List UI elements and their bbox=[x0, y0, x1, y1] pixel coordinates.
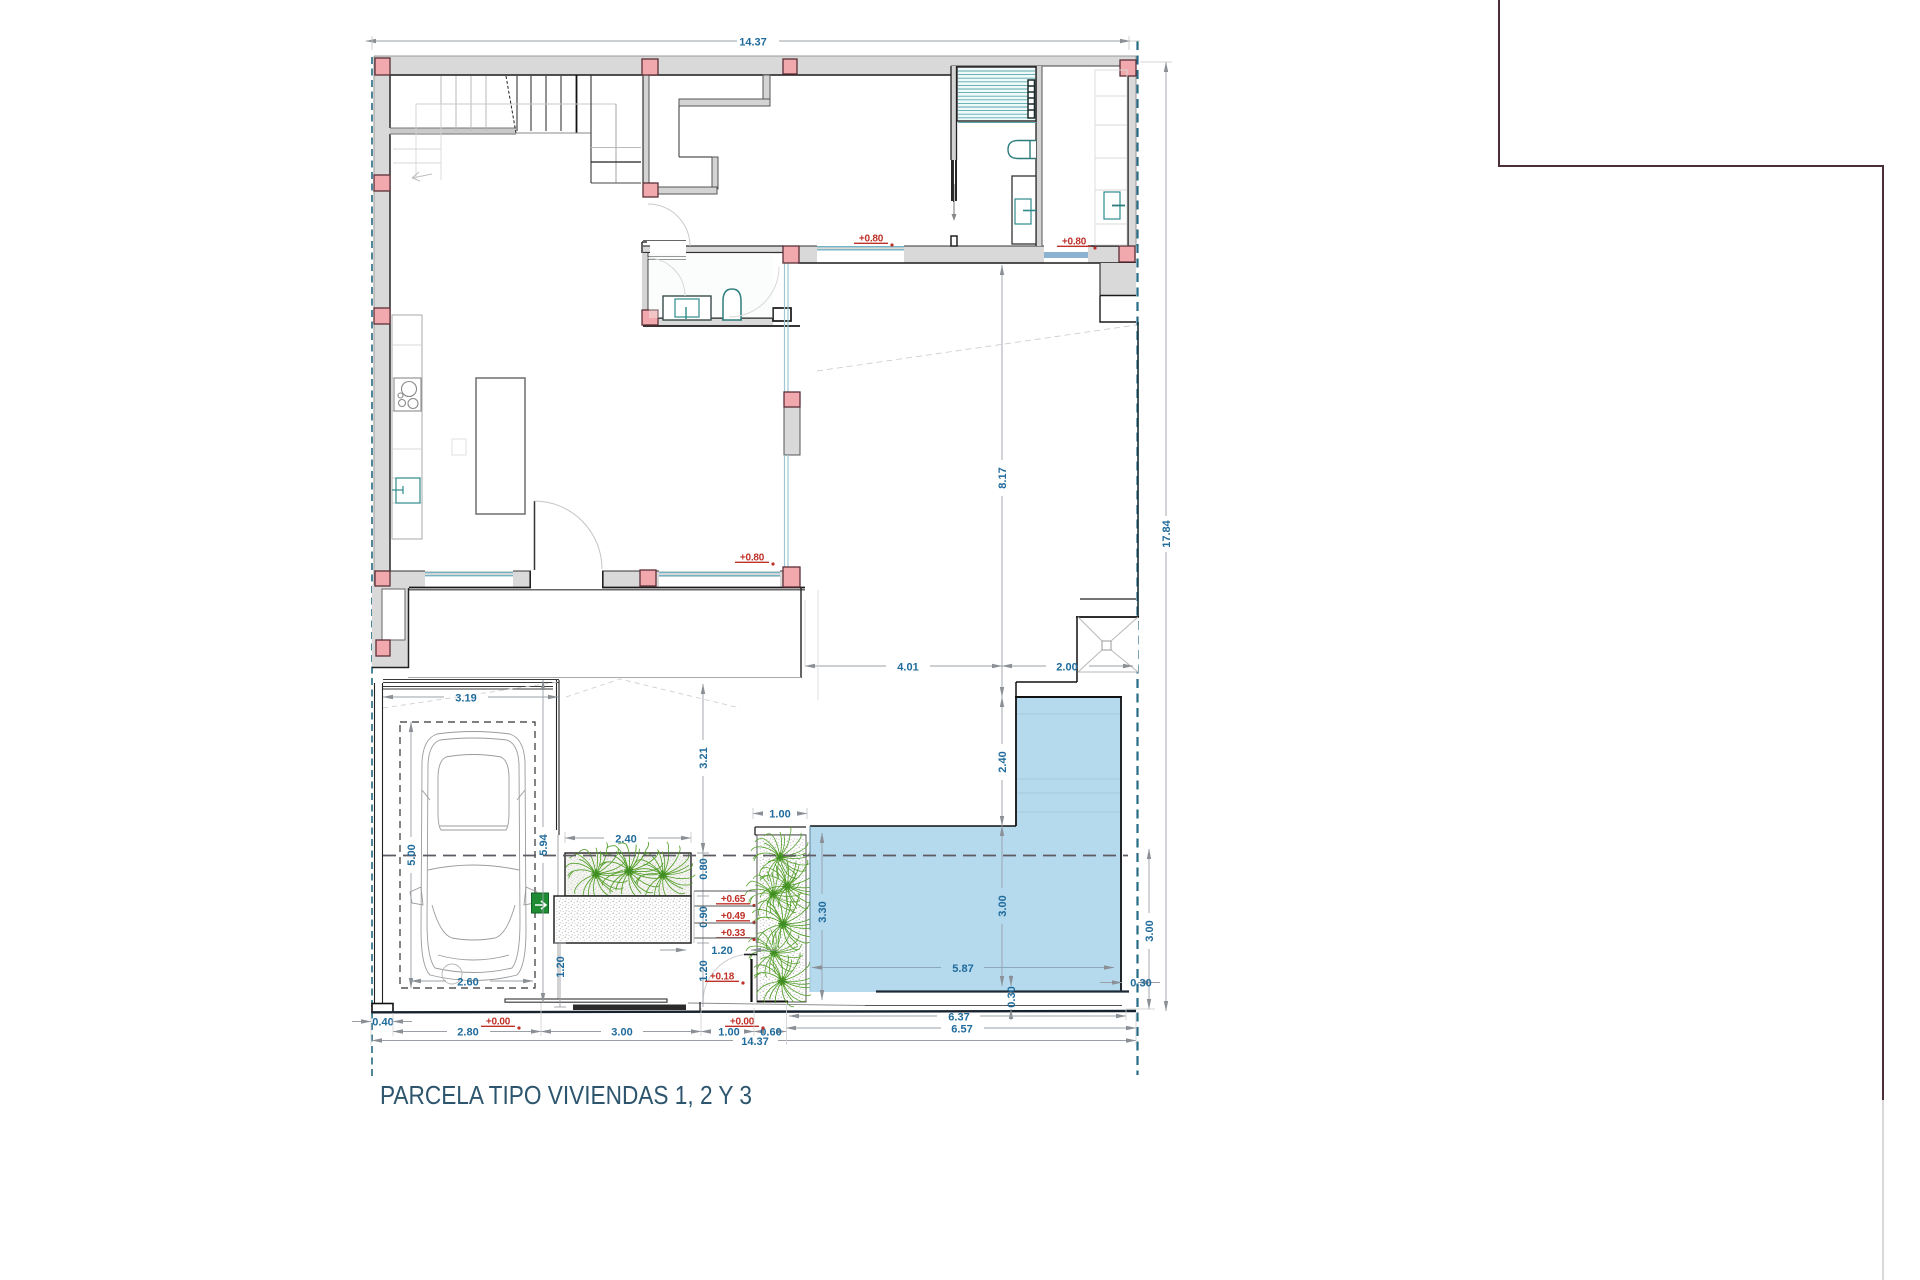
svg-text:8.17: 8.17 bbox=[997, 467, 1009, 488]
svg-text:3.00: 3.00 bbox=[997, 895, 1009, 916]
svg-text:14.37: 14.37 bbox=[739, 37, 767, 49]
svg-text:PARCELA TIPO VIVIENDAS 1, 2 Y: PARCELA TIPO VIVIENDAS 1, 2 Y 3 bbox=[380, 1082, 752, 1110]
svg-text:4.01: 4.01 bbox=[897, 662, 918, 674]
svg-text:5.94: 5.94 bbox=[538, 833, 550, 855]
svg-text:3.00: 3.00 bbox=[1144, 920, 1156, 941]
svg-text:3.21: 3.21 bbox=[698, 747, 710, 768]
svg-text:5.87: 5.87 bbox=[952, 963, 973, 975]
svg-text:0.40: 0.40 bbox=[372, 1017, 393, 1029]
svg-text:0.90: 0.90 bbox=[698, 906, 710, 927]
svg-text:17.84: 17.84 bbox=[1161, 519, 1173, 547]
svg-text:1.00: 1.00 bbox=[769, 809, 790, 821]
svg-text:1.20: 1.20 bbox=[698, 960, 710, 981]
svg-text:0.30: 0.30 bbox=[1130, 978, 1151, 990]
svg-text:2.00: 2.00 bbox=[1056, 662, 1077, 674]
svg-text:6.37: 6.37 bbox=[948, 1012, 969, 1024]
svg-text:1.20: 1.20 bbox=[555, 956, 567, 977]
svg-text:3.19: 3.19 bbox=[455, 693, 476, 705]
svg-text:2.40: 2.40 bbox=[615, 834, 636, 846]
svg-text:6.57: 6.57 bbox=[951, 1024, 972, 1036]
svg-text:2.40: 2.40 bbox=[997, 751, 1009, 772]
svg-text:1.00: 1.00 bbox=[718, 1027, 739, 1039]
svg-text:0.80: 0.80 bbox=[698, 858, 710, 879]
svg-text:0.30: 0.30 bbox=[1006, 986, 1018, 1007]
svg-text:2.80: 2.80 bbox=[457, 1027, 478, 1039]
svg-text:1.20: 1.20 bbox=[711, 945, 732, 957]
svg-text:14.37: 14.37 bbox=[741, 1036, 769, 1048]
svg-text:2.60: 2.60 bbox=[457, 977, 478, 989]
svg-text:3.30: 3.30 bbox=[817, 901, 829, 922]
svg-text:3.00: 3.00 bbox=[611, 1027, 632, 1039]
svg-text:5.00: 5.00 bbox=[406, 844, 418, 865]
